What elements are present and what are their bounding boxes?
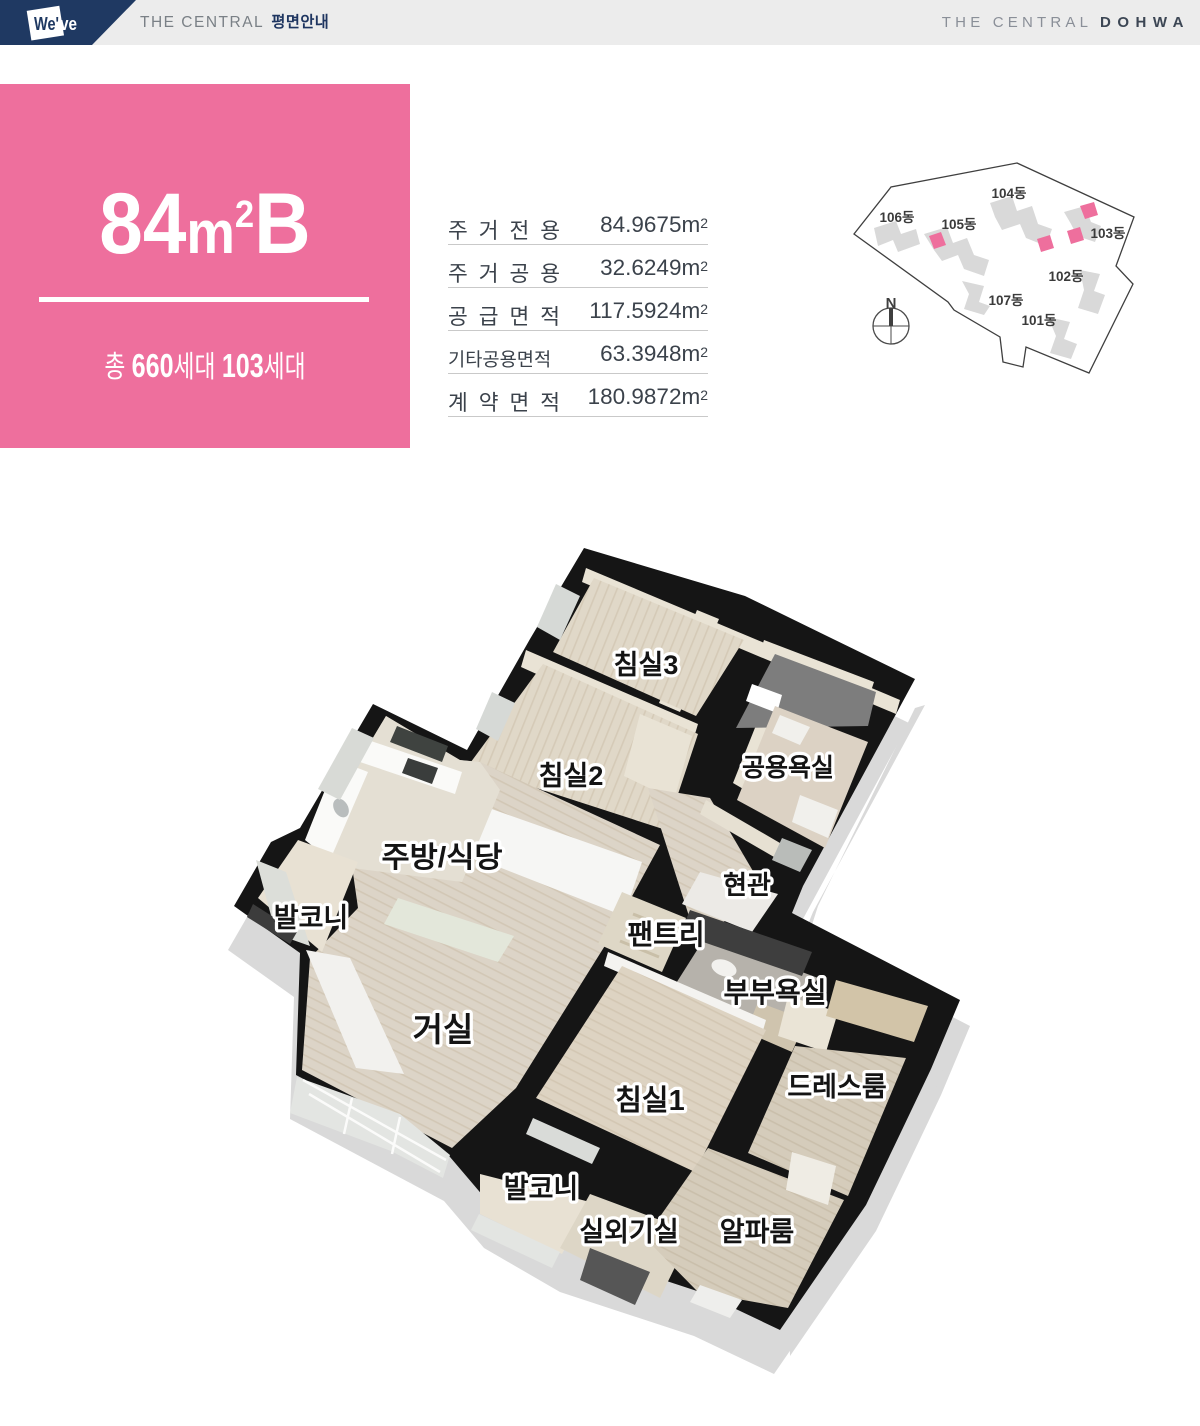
svg-text:부부욕실: 부부욕실 (723, 977, 826, 1008)
svg-text:팬트리: 팬트리 (627, 919, 704, 950)
svg-text:We've: We've (34, 14, 77, 34)
svg-text:실외기실: 실외기실 (579, 1217, 678, 1247)
svg-text:침실2: 침실2 (539, 761, 604, 791)
svg-text:103동: 103동 (1091, 226, 1126, 241)
svg-text:발코니: 발코니 (504, 1174, 579, 1204)
svg-text:발코니: 발코니 (274, 903, 349, 933)
svg-text:거실: 거실 (413, 1011, 474, 1048)
svg-text:102동: 102동 (1049, 269, 1084, 284)
svg-text:N: N (886, 295, 897, 312)
svg-text:106동: 106동 (880, 210, 915, 225)
svg-text:현관: 현관 (723, 870, 771, 900)
svg-text:알파룸: 알파룸 (720, 1217, 795, 1247)
svg-text:107동: 107동 (989, 293, 1024, 308)
svg-text:주방/식당: 주방/식당 (382, 841, 503, 874)
svg-text:공용욕실: 공용욕실 (742, 754, 834, 782)
svg-text:드레스룸: 드레스룸 (787, 1072, 886, 1102)
svg-text:101동: 101동 (1022, 313, 1057, 328)
svg-text:침실3: 침실3 (614, 650, 679, 680)
svg-text:105동: 105동 (942, 217, 977, 232)
svg-text:104동: 104동 (992, 186, 1027, 201)
svg-text:침실1: 침실1 (615, 1084, 685, 1117)
